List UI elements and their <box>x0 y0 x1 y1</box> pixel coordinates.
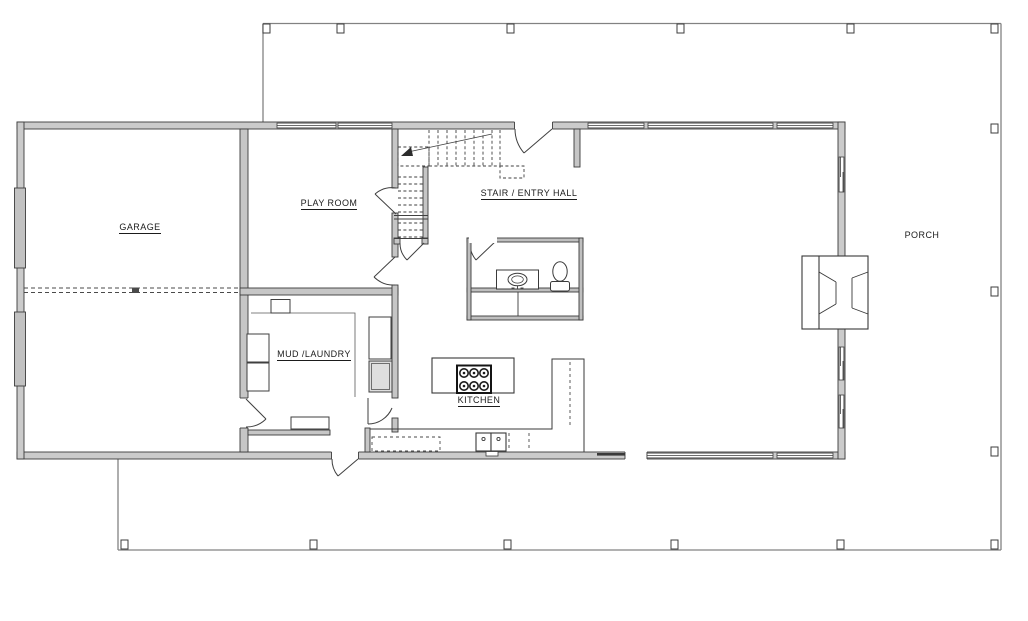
bathroom-vanity-sink <box>497 270 539 290</box>
garage-label: GARAGE <box>100 221 180 233</box>
fireplace <box>802 256 868 329</box>
door-threshold <box>597 453 625 456</box>
staircase <box>394 130 524 239</box>
toilet <box>551 262 570 291</box>
mud-tall-cabinet <box>369 317 391 359</box>
exterior-walls <box>17 122 845 459</box>
kitchen-fixtures <box>370 358 625 456</box>
porch-label: PORCH <box>882 229 962 241</box>
dishwasher <box>372 437 440 451</box>
stair-entry-hall-label: STAIR / ENTRY HALL <box>469 187 589 199</box>
garage-overhead-door-track <box>24 288 240 294</box>
mud-room-bench <box>291 417 329 429</box>
mud-lower-cabinet <box>369 361 392 392</box>
bathroom-door-gap <box>469 237 497 243</box>
mud-cabinet <box>271 300 290 314</box>
six-burner-cooktop <box>457 366 491 394</box>
play-room-label: PLAY ROOM <box>284 197 374 209</box>
mud-room-fixtures <box>247 300 392 430</box>
mud-laundry-label: MUD /LAUNDRY <box>264 348 364 360</box>
floor-plan-drawing <box>0 0 1028 621</box>
dryer <box>247 363 269 391</box>
kitchen-label: KITCHEN <box>439 394 519 406</box>
floor-plan: GARAGE PLAY ROOM STAIR / ENTRY HALL MUD … <box>0 0 1028 621</box>
